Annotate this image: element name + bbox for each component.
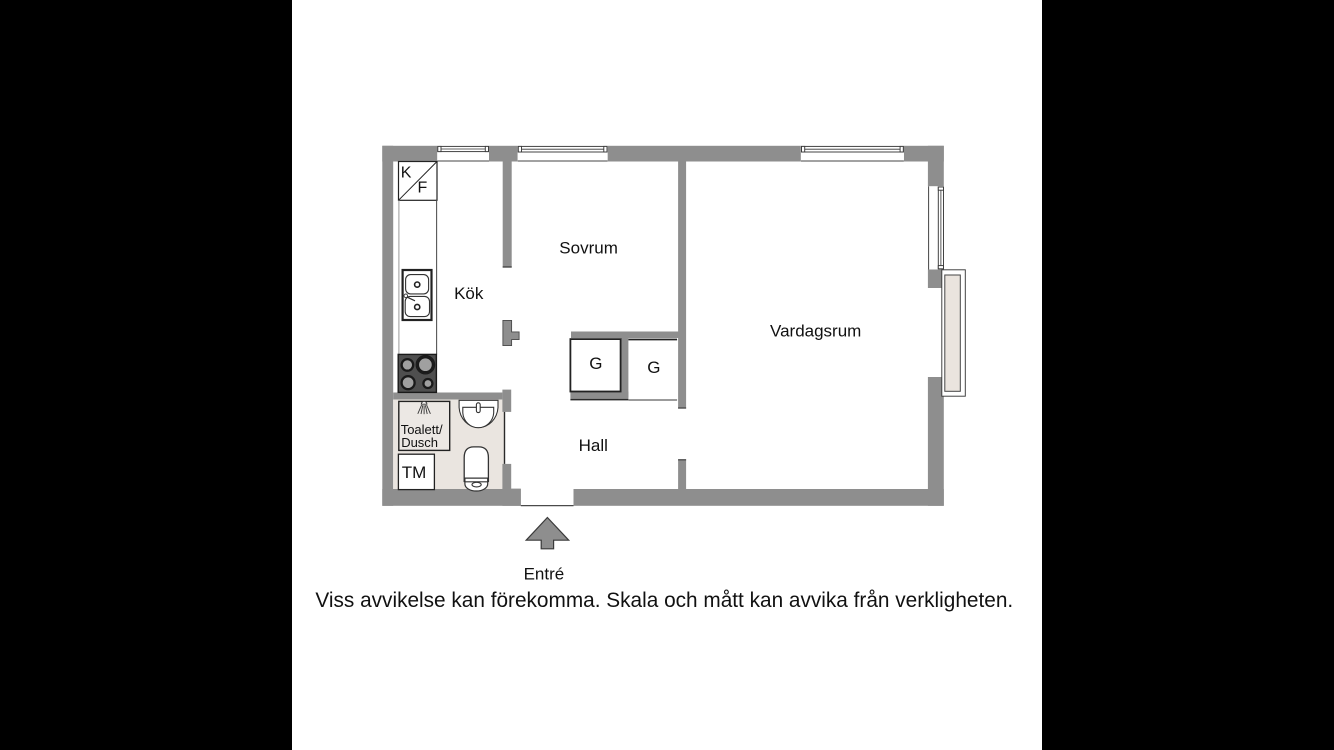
- svg-text:G: G: [589, 354, 602, 373]
- svg-text:Kök: Kök: [454, 284, 484, 303]
- svg-text:Vardagsrum: Vardagsrum: [770, 322, 861, 341]
- svg-text:G: G: [647, 358, 660, 377]
- svg-text:K: K: [401, 165, 412, 182]
- svg-text:Viss avvikelse kan förekomma.: Viss avvikelse kan förekomma. Skala och …: [315, 589, 1013, 612]
- svg-text:Entré: Entré: [524, 565, 565, 584]
- svg-text:TM: TM: [402, 463, 427, 482]
- svg-text:Dusch: Dusch: [401, 435, 438, 450]
- svg-text:Sovrum: Sovrum: [559, 238, 618, 257]
- svg-text:F: F: [418, 180, 428, 197]
- svg-text:Hall: Hall: [579, 436, 608, 455]
